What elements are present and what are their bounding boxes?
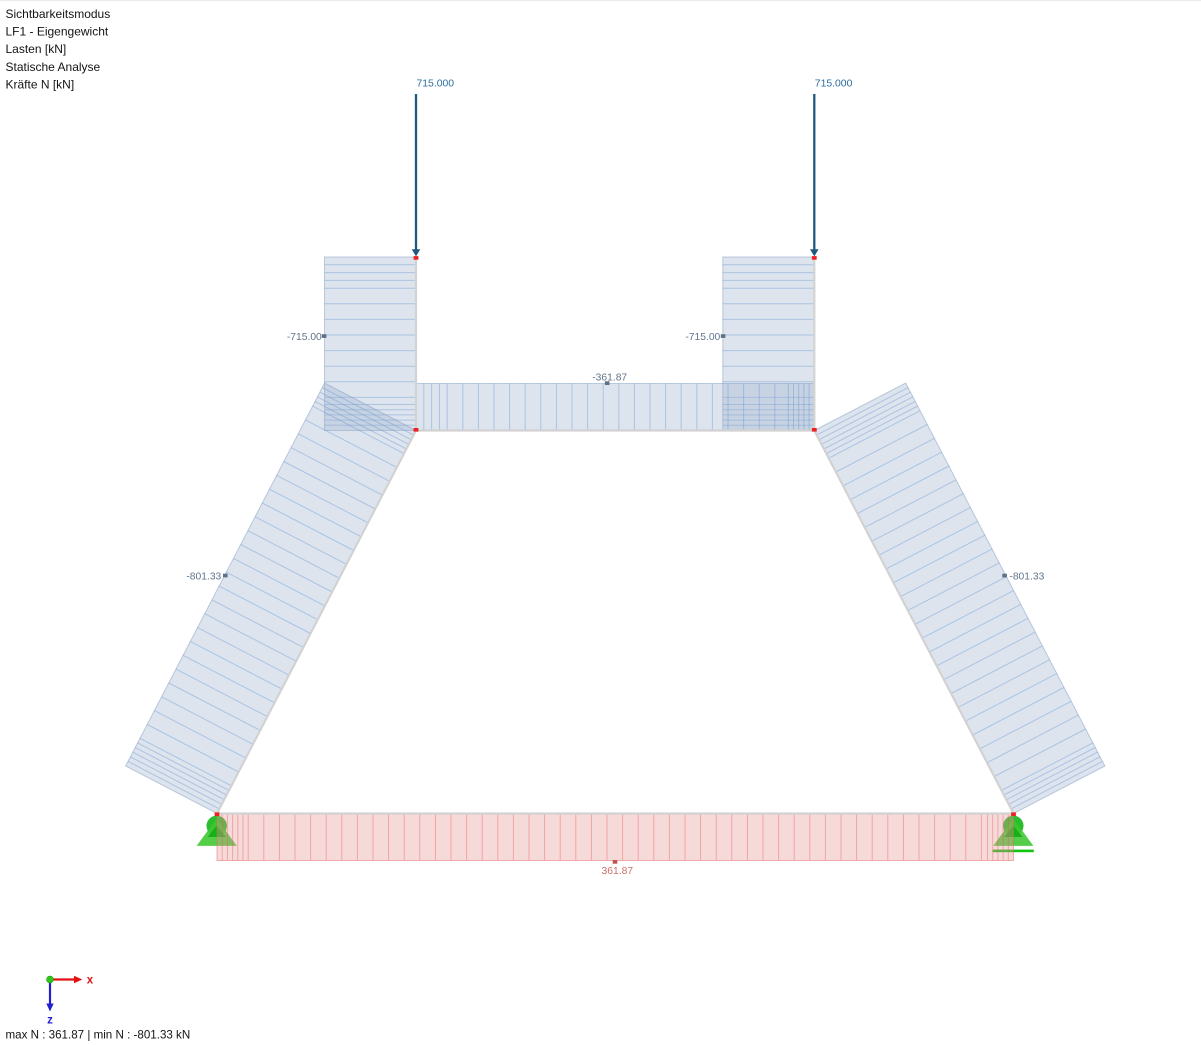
svg-text:Kräfte N [kN]: Kräfte N [kN] xyxy=(6,77,75,91)
svg-text:Lasten [kN]: Lasten [kN] xyxy=(6,42,67,56)
svg-text:-715.00: -715.00 xyxy=(685,332,720,343)
svg-text:Statische Analyse: Statische Analyse xyxy=(6,60,101,74)
svg-text:Sichtbarkeitsmodus: Sichtbarkeitsmodus xyxy=(6,7,111,21)
svg-text:361.87: 361.87 xyxy=(602,866,634,877)
svg-text:-361.87: -361.87 xyxy=(592,372,627,383)
svg-text:-801.33: -801.33 xyxy=(186,571,221,582)
svg-text:max N : 361.87 | min N : -801.: max N : 361.87 | min N : -801.33 kN xyxy=(6,1029,191,1042)
svg-text:x: x xyxy=(87,975,94,987)
svg-text:715.000: 715.000 xyxy=(815,79,853,90)
svg-text:z: z xyxy=(47,1015,53,1027)
svg-text:715.000: 715.000 xyxy=(417,79,455,90)
svg-text:LF1 - Eigengewicht: LF1 - Eigengewicht xyxy=(6,25,109,39)
svg-text:-801.33: -801.33 xyxy=(1009,571,1044,582)
svg-text:-715.00: -715.00 xyxy=(287,332,322,343)
